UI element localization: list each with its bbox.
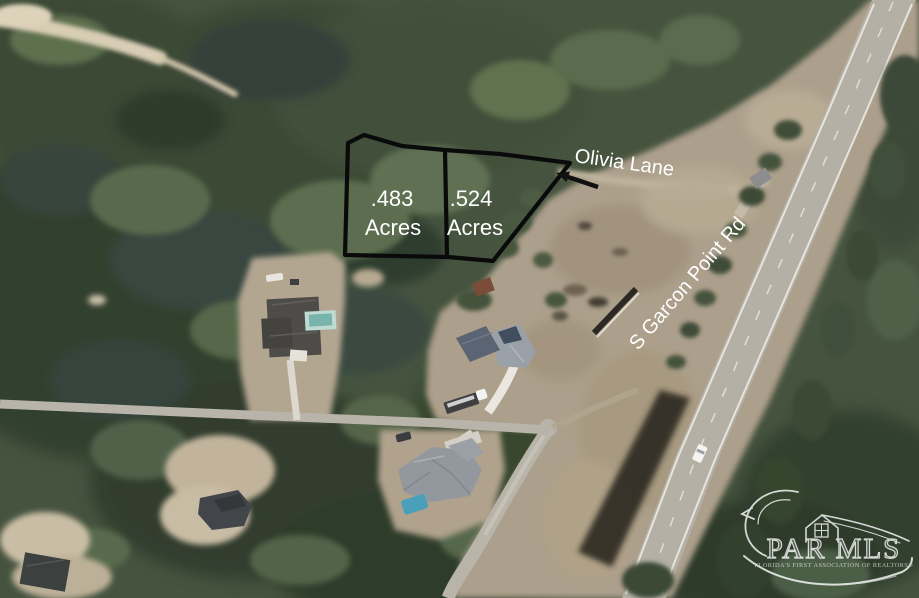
lot-right-unit-label: Acres [447, 215, 503, 240]
lot-left-acreage-label: .483 [371, 186, 414, 211]
pool [309, 313, 333, 326]
lot-left-unit-label: Acres [365, 215, 421, 240]
lot-right-acreage-label: .524 [450, 186, 493, 211]
logo-tagline-text: FLORIDA'S FIRST ASSOCIATION OF REALTORS® [755, 562, 914, 569]
lot-divider [445, 150, 447, 257]
logo-brand-text: PAR MLS [767, 533, 902, 565]
aerial-photo: .483 Acres .524 Acres Olivia Lane S Garc… [0, 0, 919, 598]
